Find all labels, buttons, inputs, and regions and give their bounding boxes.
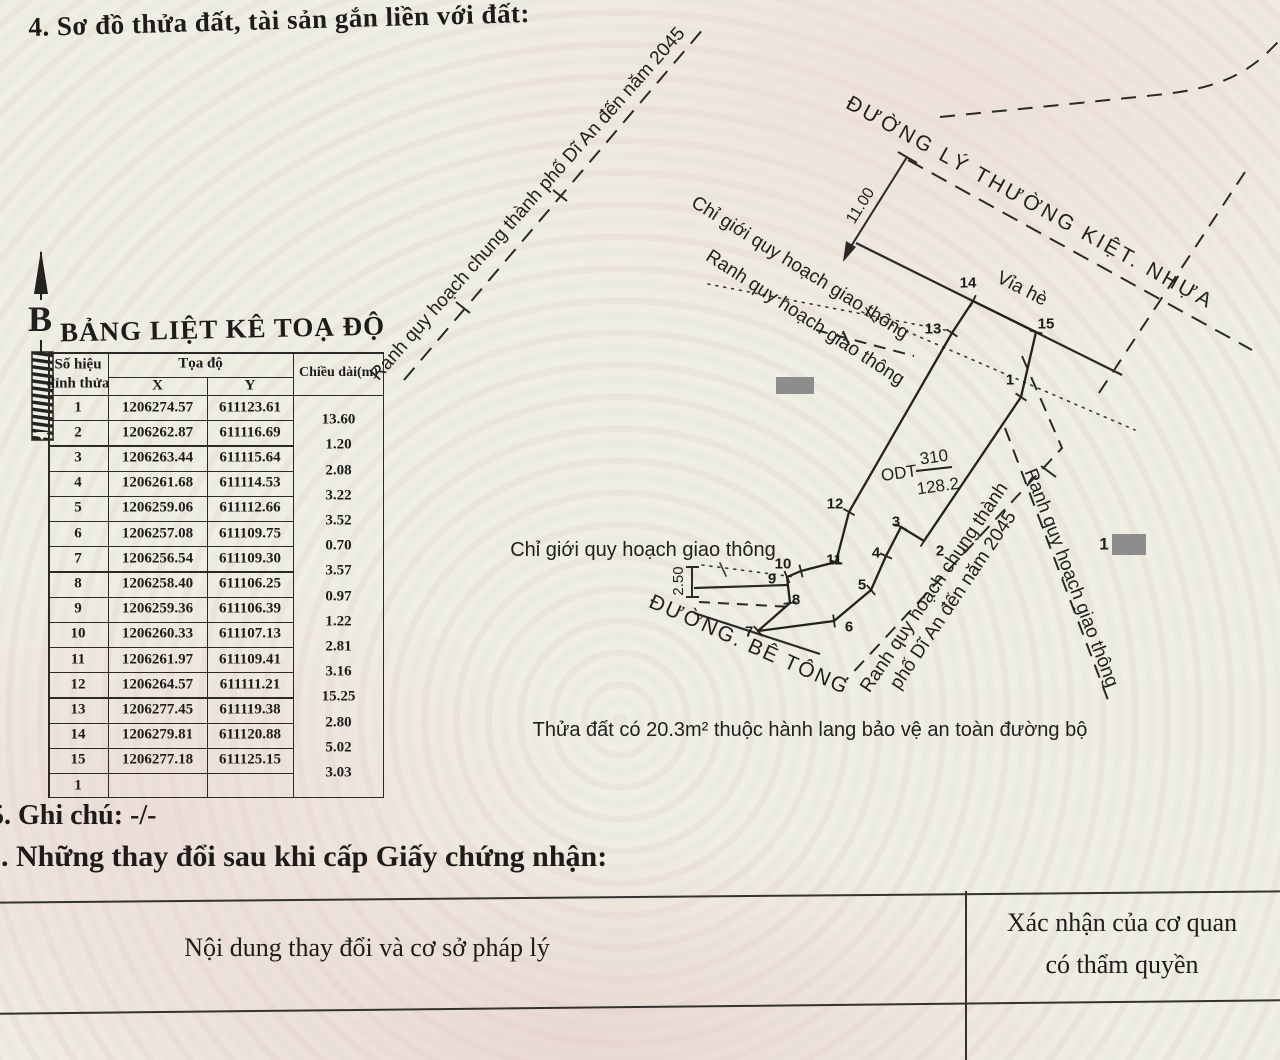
section5-title: 5. Ghi chú: -/- [0,800,156,832]
coord-header-y: Y [245,378,256,395]
redaction-box [776,377,814,394]
changes-table-left-header: Nội dung thay đổi và cơ sở pháp lý [184,933,549,963]
coord-row-length: 1.22 [325,613,351,630]
coord-table-line [383,352,385,798]
coord-row-id: 1 [74,777,82,794]
coord-row-x: 1206277.18 [122,752,193,769]
coord-row-y: 611112.66 [219,500,280,517]
coord-row-y: 611120.88 [219,727,281,744]
coord-row-id: 10 [71,626,86,643]
coord-row-length: 3.22 [325,487,351,504]
changes-table-right-header-line2: có thẩm quyền [1045,950,1198,980]
coord-row-x: 1206259.36 [122,601,193,618]
coord-row-y: 611109.30 [219,550,281,567]
coord-table: Số hiệuđỉnh thửaTọa độXYChiều dài(m)1120… [48,352,384,799]
map-label-redact-label: 1 [1099,535,1108,556]
map-vertex-label: 9 [768,571,776,588]
coord-header-point: Số hiệu [54,357,101,374]
map-vertex-label: 10 [775,556,792,573]
changes-table-divider [965,891,967,1060]
coord-row-x: 1206262.87 [122,424,193,441]
coord-table-line [48,597,293,598]
map-vertex-label: 12 [827,496,844,513]
coord-row-x: 1206260.33 [122,626,193,643]
coord-table-line [48,571,293,572]
coord-table-line [48,797,384,799]
coord-row-x: 1206259.06 [122,500,193,517]
coord-row-y: 611109.75 [219,525,281,542]
coord-header-point: đỉnh thửa [47,376,110,393]
coord-row-length: 2.80 [325,714,351,731]
coord-row-y: 611125.15 [219,752,281,769]
coord-row-id: 11 [71,651,85,668]
coord-row-x: 1206274.57 [122,399,193,416]
coord-row-id: 9 [74,601,82,618]
coord-row-id: 14 [71,727,86,744]
coord-row-x: 1206257.08 [122,525,193,542]
changes-table-right-header: Xác nhận của cơ quan [1007,908,1237,938]
coord-row-x: 1206263.44 [122,450,193,467]
coord-row-id: 3 [74,450,82,467]
coord-table-line [48,773,293,774]
coord-row-y: 611115.64 [219,450,280,467]
map-vertex-label: 14 [960,275,977,292]
coord-table-line [48,748,293,749]
section6-title: 6. Những thay đổi sau khi cấp Giấy chứng… [0,840,607,874]
coord-row-length: 1.20 [325,437,351,454]
map-vertex-label: 13 [925,321,942,338]
coord-row-length: 0.97 [325,588,351,605]
coord-row-x: 1206256.54 [122,550,193,567]
map-vertex-label: 2 [936,543,944,560]
coord-row-y: 611119.38 [219,702,280,719]
coord-row-id: 2 [74,424,82,441]
coord-row-x: 1206258.40 [122,576,193,593]
coord-row-x: 1206261.68 [122,475,193,492]
coord-table-line [48,445,293,446]
coord-row-y: 611107.13 [219,626,281,643]
redaction-box [1112,534,1146,555]
map-label-note: Thửa đất có 20.3m² thuộc hành lang bảo v… [533,718,1088,742]
coord-row-id: 7 [74,550,82,567]
coord-row-id: 12 [71,676,86,693]
map-vertex-label: 11 [826,552,842,569]
coord-table-line [48,672,293,673]
coord-table-line [48,697,293,698]
coord-table-line [48,723,293,724]
coord-table-line [48,622,293,623]
map-label-dim-250: 2.50 [670,566,688,595]
coord-row-id: 13 [71,702,86,719]
coord-row-y: 611111.21 [220,676,280,693]
boundary-curve-dashed [940,40,1280,117]
coord-row-length: 3.57 [325,563,351,580]
map-vertex-label: 1 [1006,372,1014,389]
coord-table-line [207,377,208,798]
coord-table-line [108,352,109,798]
coord-row-y: 611109.41 [219,651,281,668]
coord-row-id: 15 [71,752,86,769]
topleft-boundary-dashed-line [404,28,704,380]
map-vertex-label: 6 [845,619,853,636]
coord-row-id: 8 [74,576,82,593]
coord-row-length: 15.25 [322,689,356,706]
coord-row-length: 0.70 [325,538,351,555]
coord-table-line [48,496,293,497]
coord-row-length: 3.16 [325,664,351,681]
map-vertex-label: 15 [1038,316,1055,333]
map-vertex-label: 4 [872,545,880,562]
coord-row-length: 3.52 [325,513,351,530]
coord-row-length: 2.08 [325,462,351,479]
coord-row-x: 1206264.57 [122,676,193,693]
coord-row-length: 5.02 [325,739,351,756]
coord-table-line [48,420,293,421]
coord-table-line [48,395,384,396]
coord-row-y: 611123.61 [219,399,281,416]
map-label-parcel-number: 310 [919,446,950,470]
coord-row-y: 611116.69 [219,424,280,441]
coord-table-line [48,352,50,798]
coord-row-id: 5 [74,500,82,517]
map-vertex-label: 7 [745,624,753,641]
coord-row-id: 1 [74,399,82,416]
planning-dotted-lines [702,284,1135,577]
coord-header-coords: Tọa độ [178,356,223,373]
coord-row-length: 2.81 [325,639,351,656]
coord-row-id: 6 [74,525,82,542]
map-north-label: B [28,298,52,342]
coord-row-y: 611114.53 [219,475,280,492]
coord-row-id: 4 [74,475,82,492]
coord-table-line [48,471,293,472]
coord-row-y: 611106.39 [219,601,281,618]
coord-table-line [108,377,293,378]
coord-table-line [293,352,294,798]
coord-table-line [48,647,293,648]
map-label-chi-gioi-left: Chỉ giới quy hoạch giao thông [510,538,776,562]
coord-row-length: 3.03 [325,765,351,782]
map-vertex-label: 5 [858,577,866,594]
coord-table-line [48,546,293,547]
map-vertex-label: 3 [892,514,900,531]
coord-header-x: X [152,378,163,395]
coord-row-x: 1206277.45 [122,702,193,719]
coord-row-x: 1206261.97 [122,651,193,668]
coord-row-length: 13.60 [322,412,356,429]
coord-row-x: 1206279.81 [122,727,193,744]
coord-row-y: 611106.25 [219,576,281,593]
map-vertex-label: 8 [792,592,800,609]
coord-table-line [48,521,293,522]
coord-table-line [48,352,384,354]
